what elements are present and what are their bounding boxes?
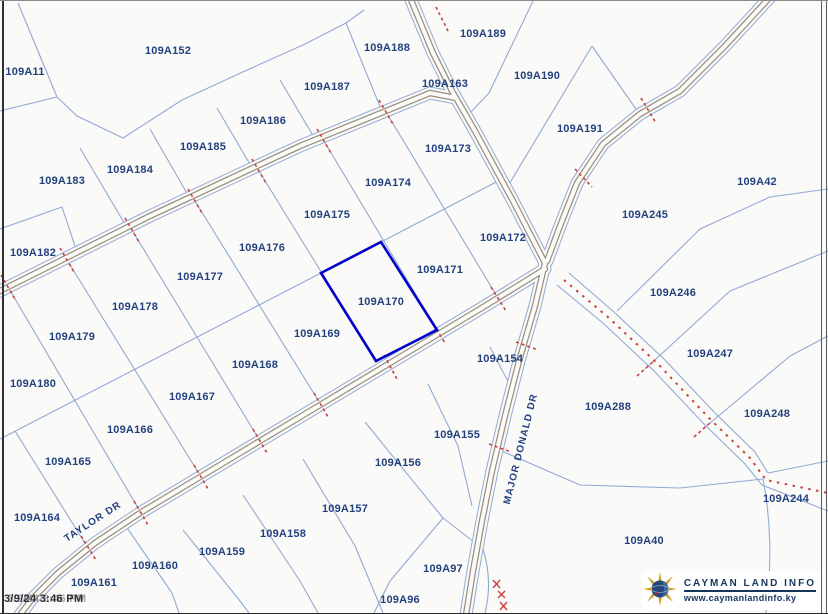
parcel-label-109A244[interactable]: 109A244 [763,493,809,505]
parcel-label-109A248[interactable]: 109A248 [744,408,790,420]
parcel-label-109A247[interactable]: 109A247 [687,348,733,360]
parcel-label-109A160[interactable]: 109A160 [132,560,178,572]
parcel-label-109A183[interactable]: 109A183 [39,175,85,187]
survey-mark-dashes [1,7,712,560]
parcel-label-109A187[interactable]: 109A187 [304,81,350,93]
map-frame-right [826,1,827,613]
parcel-label-109A245[interactable]: 109A245 [622,209,668,221]
parcel-label-109A161[interactable]: 109A161 [71,577,117,589]
parcel-label-109A176[interactable]: 109A176 [239,242,285,254]
parcel-label-109A171[interactable]: 109A171 [417,264,463,276]
parcel-label-109A177[interactable]: 109A177 [177,271,223,283]
parcel-label-109A180[interactable]: 109A180 [10,378,56,390]
parcel-label-109A178[interactable]: 109A178 [112,301,158,313]
parcel-label-109A186[interactable]: 109A186 [240,115,286,127]
dotted-track [557,273,828,493]
parcel-label-109A96[interactable]: 109A96 [380,594,420,606]
parcel-label-109A165[interactable]: 109A165 [45,456,91,468]
cayman-land-info-logo[interactable]: CAYMAN LAND INFO www.caymanlandinfo.ky [642,571,820,610]
parcel-label-109A172[interactable]: 109A172 [480,232,526,244]
cadastral-map[interactable]: 109A11109A152109A188109A189109A163109A19… [0,0,828,614]
logo-website-link[interactable]: www.caymanlandinfo.ky [684,593,816,603]
parcel-label-109A166[interactable]: 109A166 [107,424,153,436]
parcel-label-109A191[interactable]: 109A191 [557,123,603,135]
parcel-label-109A164[interactable]: 109A164 [14,512,60,524]
parcel-label-109A182[interactable]: 109A182 [10,247,56,259]
parcel-label-109A179[interactable]: 109A179 [49,331,95,343]
parcel-label-109A159[interactable]: 109A159 [199,546,245,558]
logo-org-name: CAYMAN LAND INFO [684,578,816,589]
parcel-label-109A97[interactable]: 109A97 [423,563,463,575]
parcel-label-109A155[interactable]: 109A155 [434,429,480,441]
parcel-label-109A156[interactable]: 109A156 [375,457,421,469]
parcel-label-109A246[interactable]: 109A246 [650,287,696,299]
parcel-label-109A174[interactable]: 109A174 [365,177,411,189]
logo-divider [684,590,816,592]
globe-icon [644,572,680,608]
parcel-label-109A190[interactable]: 109A190 [514,70,560,82]
parcel-label-109A185[interactable]: 109A185 [180,141,226,153]
parcel-label-109A175[interactable]: 109A175 [304,209,350,221]
parcel-label-109A184[interactable]: 109A184 [107,164,153,176]
parcel-label-109A189[interactable]: 109A189 [460,28,506,40]
parcel-label-109A11[interactable]: 109A11 [5,66,44,78]
parcel-label-109A157[interactable]: 109A157 [322,503,368,515]
parcel-label-109A152[interactable]: 109A152 [145,45,191,57]
parcel-label-109A154[interactable]: 109A154 [477,353,523,365]
map-neatline-right [821,1,822,613]
parcel-label-109A167[interactable]: 109A167 [169,391,215,403]
parcel-label-109A173[interactable]: 109A173 [425,143,471,155]
timestamp: 3/9/24 3:46 PM [4,593,83,605]
parcel-label-109A40[interactable]: 109A40 [624,535,664,547]
parcel-label-109A158[interactable]: 109A158 [260,528,306,540]
map-frame-left [2,1,4,613]
parcel-label-109A288[interactable]: 109A288 [585,401,631,413]
parcel-label-109A42[interactable]: 109A42 [737,176,777,188]
parcel-label-109A170[interactable]: 109A170 [358,296,404,308]
survey-cross-marks [493,580,507,610]
parcel-label-109A188[interactable]: 109A188 [364,42,410,54]
parcel-label-109A168[interactable]: 109A168 [232,359,278,371]
parcel-label-109A163[interactable]: 109A163 [422,78,468,90]
parcel-label-109A169[interactable]: 109A169 [294,328,340,340]
